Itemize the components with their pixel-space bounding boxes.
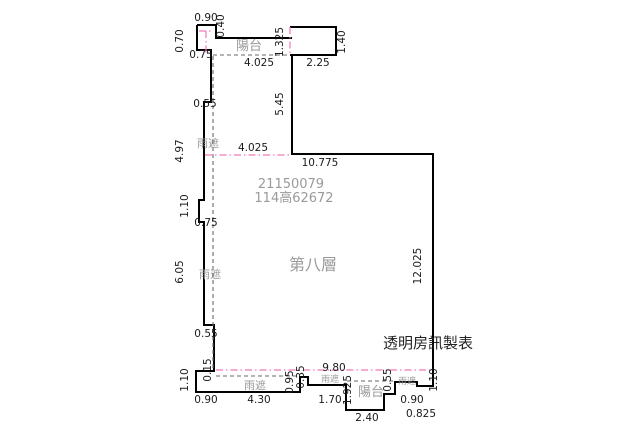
label-producer: 透明房訊製表	[383, 334, 473, 352]
dim-0-40: 0.40	[215, 14, 227, 37]
dim-4-30: 4.30	[247, 394, 270, 406]
dim-0-15: 0.15	[202, 358, 214, 381]
dim-0-825: 0.825	[406, 408, 436, 420]
dim-1-10-left2: 1.10	[179, 368, 191, 391]
label-floor: 第八層	[289, 255, 337, 274]
label-eave-left2: 雨遮	[199, 267, 221, 281]
dim-0-35: 0.35	[295, 365, 307, 388]
wall-main-outline	[196, 56, 433, 410]
label-eave-left1: 雨遮	[197, 136, 219, 150]
wall-top-right-balcony	[290, 27, 336, 55]
dim-4-97: 4.97	[174, 139, 186, 162]
dim-6-05: 6.05	[174, 260, 186, 283]
dim-0-75-mid: 0.75	[194, 217, 217, 229]
dim-1-325: 1.325	[274, 27, 286, 57]
label-eave-bottom3: 雨遮	[398, 375, 416, 387]
label-reg-number-1: 21150079	[258, 177, 324, 192]
dim-4-025-mid: 4.025	[238, 142, 268, 154]
floor-plan-drawing: 0.900.400.700.75陽台1.3254.0252.251.400.55…	[0, 0, 640, 442]
dim-0-70: 0.70	[174, 29, 186, 52]
dim-1-10-left1: 1.10	[179, 194, 191, 217]
dim-0-75-top: 0.75	[189, 49, 212, 61]
dim-10-775: 10.775	[302, 157, 339, 169]
dim-1-925: 1.925	[342, 375, 354, 405]
floor-plan-page: 0.900.400.700.75陽台1.3254.0252.251.400.55…	[0, 0, 640, 442]
dim-1-10-right: 1.10	[428, 368, 440, 391]
label-reg-number-2: 114高62672	[254, 190, 333, 206]
dim-1-70: 1.70	[318, 394, 341, 406]
dim-0-55-left2: 0.55	[194, 328, 217, 340]
dim-2-40: 2.40	[355, 412, 378, 424]
dim-4-025-top: 4.025	[244, 57, 274, 69]
dim-2-25: 2.25	[306, 57, 329, 69]
dim-9-80: 9.80	[322, 362, 345, 374]
dim-5-45: 5.45	[274, 92, 286, 115]
label-balcony-top: 陽台	[236, 39, 262, 54]
dim-1-40: 1.40	[336, 30, 348, 53]
dim-12-025: 12.025	[412, 248, 424, 285]
labels-layer: 0.900.400.700.75陽台1.3254.0252.251.400.55…	[174, 12, 473, 424]
label-eave-bottom2: 雨遮	[321, 373, 339, 385]
dim-0-55-left1: 0.55	[193, 98, 216, 110]
dim-0-90-bottom-left: 0.90	[194, 394, 217, 406]
dim-0-55-balcony: 0.55	[382, 368, 394, 391]
dim-0-90-bottom-right: 0.90	[400, 394, 423, 406]
label-eave-bottom1: 雨遮	[244, 378, 266, 392]
label-balcony-bottom: 陽台	[358, 385, 384, 400]
